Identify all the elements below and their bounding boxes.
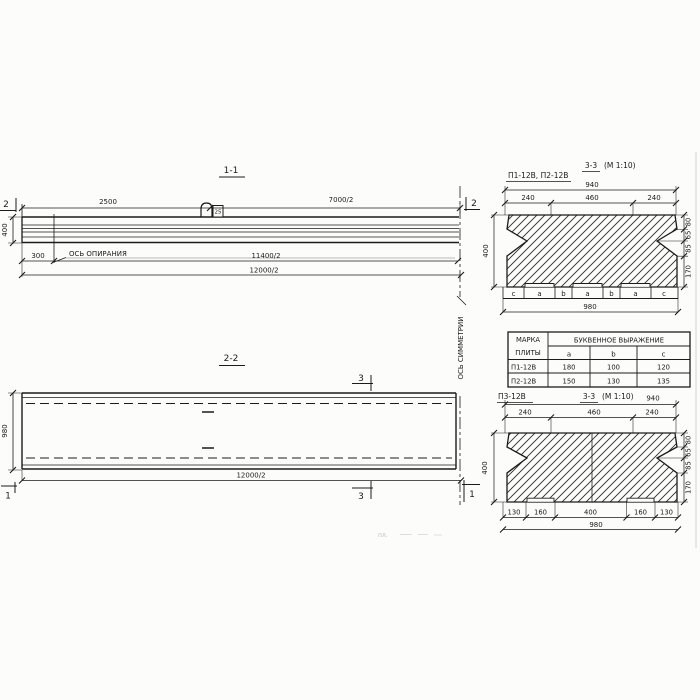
table-header-marka: МАРКА (516, 336, 540, 344)
dim-11400-2: 11400/2 (251, 252, 280, 260)
marker-1-label: 1 (469, 490, 475, 500)
letter-b: b (561, 290, 566, 298)
dim-460-label: 460 (585, 194, 598, 202)
dim-240-label: 240 (645, 409, 658, 417)
cross-section-hatched (507, 215, 677, 287)
bearing-axis-label: ОСЬ ОПИРАНИЯ (69, 250, 127, 258)
dim-240-label: 240 (647, 194, 660, 202)
dim-980-label: 980 (1, 424, 9, 437)
cut-marker-2-right: 2 (464, 197, 480, 211)
letter-band (503, 287, 678, 299)
cell-c: 135 (657, 378, 670, 386)
dim-400-label: 400 (1, 223, 9, 236)
dim-160-label: 160 (534, 509, 547, 517)
letter-a: a (585, 290, 589, 298)
dim-240-460-240 (502, 415, 679, 434)
scale-label: (М 1:10) (602, 392, 634, 401)
dim-400-left (491, 212, 509, 290)
dim-980-label: 980 (583, 303, 596, 311)
drawing-sheet: 1-1 25 2500 7000/2 2 2 (0, 0, 700, 700)
soffit-recesses (525, 284, 650, 288)
row-mark: П1-12В (511, 364, 537, 372)
letter-a: a (633, 290, 637, 298)
cell-a: 150 (563, 378, 576, 386)
letter-a: a (537, 290, 541, 298)
dim-2500: 2500 (99, 198, 117, 206)
dim-170-label: 170 (685, 265, 693, 278)
dim-65-label: 65 (685, 231, 693, 240)
section-3-3-top-view: П1-12В, П2-12В 3-3 (М 1:10) 940 240 460 … (482, 161, 693, 315)
cell-c: 120 (657, 364, 670, 372)
beam-elevation (22, 217, 459, 243)
dim-85-label: 85 (685, 461, 693, 470)
faint-stray-text: пл. (378, 532, 388, 539)
plate-mark-label: П3-12В (498, 392, 526, 401)
dim-line-12000 (19, 204, 464, 278)
dim-length-label: 12000/2 (236, 472, 265, 480)
dim-170-label: 170 (685, 481, 693, 494)
technical-drawing: 1-1 25 2500 7000/2 2 2 (0, 0, 700, 700)
table-row: П2-12В 150 130 135 (511, 378, 670, 386)
dim-400-left (491, 430, 509, 505)
loop-tag-label: 25 (215, 210, 222, 216)
marker-3-label: 3 (358, 492, 364, 502)
dim-65-label: 65 (685, 448, 693, 457)
dim-160-label: 160 (634, 509, 647, 517)
cut-marker-2-left: 2 (0, 198, 16, 212)
cut-marker-3-bottom: 3 (352, 481, 373, 502)
dim-460-label: 460 (587, 409, 600, 417)
dim-85-label: 85 (685, 244, 693, 253)
dim-130-label: 130 (508, 509, 521, 517)
dim-80-label: 80 (685, 218, 693, 227)
section-1-1-view: 1-1 25 2500 7000/2 2 2 (0, 166, 480, 278)
table-header-plity: ПЛИТЫ (515, 349, 540, 357)
marker-1-label: 1 (5, 492, 11, 502)
dim-940-label: 940 (646, 395, 659, 403)
section-2-2-title: 2-2 (224, 354, 239, 364)
table-header-group: БУКВЕННОЕ ВЫРАЖЕНИЕ (574, 337, 664, 345)
dimensions-table: МАРКА ПЛИТЫ БУКВЕННОЕ ВЫРАЖЕНИЕ a b c П1… (508, 332, 690, 387)
cell-b: 100 (607, 364, 620, 372)
letter-b: b (609, 290, 614, 298)
dim-240-460-240 (502, 200, 679, 215)
table-col-a: a (567, 351, 571, 359)
symmetry-axis-label: ОСЬ СИММЕТРИИ (457, 316, 465, 379)
cell-b: 130 (607, 378, 620, 386)
dim-130-label: 130 (660, 509, 673, 517)
letter-c: c (662, 290, 666, 298)
table-row: П1-12В 180 100 120 (511, 364, 670, 372)
section-1-1-title: 1-1 (224, 166, 239, 176)
marker-2-label: 2 (3, 200, 9, 210)
section-3-3-title: 3-3 (583, 392, 595, 401)
dim-7000-2: 7000/2 (329, 196, 354, 204)
dim-line-top (19, 203, 463, 217)
cut-marker-3-top: 3 (352, 374, 373, 391)
cut-marker-1-right: 1 (462, 480, 480, 502)
table-col-c: c (662, 351, 666, 359)
dim-240-label: 240 (521, 194, 534, 202)
dim-940-label: 940 (585, 181, 598, 189)
section-3-3-bottom-view: П3-12В 3-3 (М 1:10) 940 240 460 240 (481, 392, 693, 533)
letter-c: c (512, 290, 516, 298)
dim-width-980 (8, 390, 22, 473)
dim-940 (502, 400, 679, 433)
marker-2-label: 2 (471, 199, 477, 209)
dim-line-11400 (19, 258, 461, 264)
symmetry-axis: ОСЬ СИММЕТРИИ (452, 186, 468, 505)
dim-300: 300 (31, 252, 44, 260)
table-col-b: b (611, 351, 616, 359)
dim-240-label: 240 (518, 409, 531, 417)
scale-label: (М 1:10) (604, 161, 636, 170)
plate-marks-label: П1-12В, П2-12В (508, 171, 568, 180)
dim-12000-2: 12000/2 (249, 267, 278, 275)
section-2-2-view: 2-2 980 3 3 1 1 (1, 354, 480, 502)
dim-400-label: 400 (481, 461, 489, 474)
dim-height-400 (8, 214, 22, 246)
dim-80-label: 80 (685, 436, 693, 445)
row-mark: П2-12В (511, 378, 537, 386)
dim-400-label: 400 (482, 244, 490, 257)
plan-outline (22, 393, 456, 469)
cell-a: 180 (563, 364, 576, 372)
section-3-3-title: 3-3 (585, 161, 597, 170)
marker-3-label: 3 (358, 374, 364, 384)
dim-400-label: 400 (584, 509, 597, 517)
cut-marker-1-left: 1 (1, 482, 17, 502)
dim-980-label: 980 (589, 521, 602, 529)
